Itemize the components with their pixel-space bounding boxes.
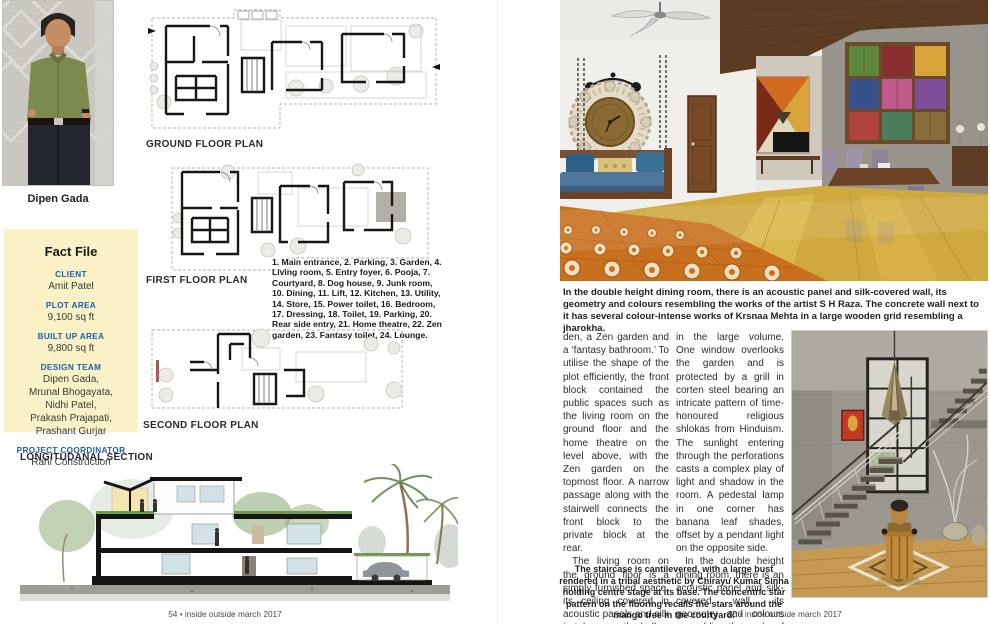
- dining-room-illustration: [560, 0, 988, 281]
- door-swings: [210, 26, 392, 50]
- light-partitions: [258, 172, 368, 226]
- staircase-photo: [791, 330, 988, 598]
- first-floor-plan-label: FIRST FLOOR PLAN: [146, 275, 247, 286]
- krsnaa-mehta-art-grid: [845, 42, 950, 144]
- fact-label: PLOT AREA: [4, 301, 138, 310]
- stair-treads: [259, 374, 269, 404]
- fact-value: 9,100 sq ft: [4, 311, 138, 324]
- page-number-right: 55 • inside outside march 2017: [615, 609, 955, 619]
- tv-screen: [773, 132, 809, 152]
- architect-portrait-photo: [2, 0, 114, 186]
- page-fold: [497, 0, 498, 624]
- page-number-left: 54 • inside outside march 2017: [55, 609, 395, 619]
- ground-floor-plan-label: GROUND FLOOR PLAN: [146, 139, 263, 150]
- portrait-caption: Dipen Gada: [2, 193, 114, 205]
- longitudinal-section-label: LONGITUDANAL SECTION: [20, 452, 153, 463]
- walls: [166, 26, 404, 114]
- body-paragraph: in the large volume. One window overlook…: [676, 331, 784, 555]
- swing-bench: [560, 148, 672, 199]
- fact-section-built-up-area: BUILT UP AREA 9,800 sq ft: [4, 332, 138, 355]
- staircase-illustration: [792, 331, 987, 597]
- body-paragraph: den, a Zen garden and a ‘fantasy bathroo…: [563, 331, 669, 555]
- dining-room-photo: [560, 0, 988, 281]
- fact-file-box: Fact File CLIENT Amit Patel PLOT AREA 9,…: [4, 229, 138, 432]
- railing: [156, 360, 159, 382]
- door: [688, 96, 716, 192]
- fact-label: BUILT UP AREA: [4, 332, 138, 341]
- fact-label: DESIGN TEAM: [4, 363, 138, 372]
- entry-arrow: [148, 28, 156, 34]
- second-floor-plan-label: SECOND FLOOR PLAN: [143, 420, 259, 431]
- console-table: [756, 156, 820, 160]
- walls: [182, 172, 392, 254]
- ground-floor-plan-drawing: [146, 6, 442, 134]
- fact-value: 9,800 sq ft: [4, 342, 138, 355]
- fact-section-plot-area: PLOT AREA 9,100 sq ft: [4, 301, 138, 324]
- red-artwork: [842, 410, 864, 440]
- longitudinal-section-drawing: [12, 464, 458, 602]
- fact-section-design-team: DESIGN TEAM Dipen Gada, Mrunal Bhogayata…: [4, 363, 138, 438]
- stair-treads: [247, 58, 257, 92]
- fact-section-client: CLIENT Amit Patel: [4, 270, 138, 293]
- walls: [190, 334, 304, 408]
- garden-trees: [159, 329, 402, 402]
- fact-file-title: Fact File: [4, 244, 138, 259]
- light-partitions: [241, 20, 426, 98]
- second-floor-plan-drawing: [146, 320, 434, 418]
- fact-value: Amit Patel: [4, 280, 138, 293]
- fact-value: Dipen Gada, Mrunal Bhogayata, Nidhi Pate…: [4, 373, 138, 438]
- parking-bays: [238, 11, 277, 19]
- dining-room-caption: In the double height dining room, there …: [563, 287, 987, 335]
- portrait-illustration: [3, 1, 113, 185]
- fact-label: CLIENT: [4, 270, 138, 279]
- ground-plane: [20, 585, 450, 601]
- garden-trees: [150, 24, 423, 109]
- magazine-spread: Dipen Gada GROU: [0, 0, 990, 624]
- stair-treads: [257, 198, 267, 232]
